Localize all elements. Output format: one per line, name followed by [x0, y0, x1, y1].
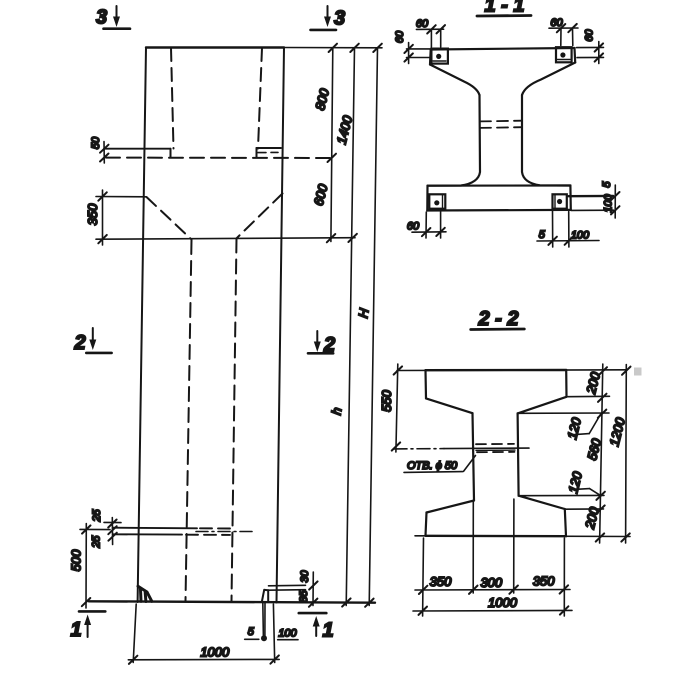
svg-text:300: 300 — [480, 575, 502, 590]
svg-text:3: 3 — [96, 7, 107, 29]
svg-text:5: 5 — [539, 229, 546, 241]
svg-text:100: 100 — [278, 627, 297, 639]
svg-text:1 - 1: 1 - 1 — [484, 0, 524, 17]
svg-text:3: 3 — [334, 8, 345, 30]
svg-text:600: 600 — [311, 182, 331, 207]
svg-text:25: 25 — [91, 535, 103, 549]
svg-text:30: 30 — [299, 570, 311, 583]
svg-text:1: 1 — [71, 619, 82, 641]
svg-text:50: 50 — [90, 136, 102, 149]
svg-text:350: 350 — [430, 574, 452, 589]
svg-text:85: 85 — [298, 590, 310, 603]
svg-text:1200: 1200 — [606, 415, 628, 447]
svg-text:60: 60 — [550, 17, 563, 29]
svg-text:60: 60 — [416, 18, 429, 30]
svg-text:1: 1 — [323, 620, 334, 642]
svg-text:ОТВ. ϕ 50: ОТВ. ϕ 50 — [407, 460, 458, 472]
svg-text:500: 500 — [69, 549, 84, 571]
svg-text:60: 60 — [407, 221, 420, 233]
svg-text:120: 120 — [564, 415, 584, 440]
svg-text:1000: 1000 — [488, 595, 518, 610]
svg-text:2 - 2: 2 - 2 — [477, 308, 518, 330]
svg-text:1000: 1000 — [200, 645, 230, 660]
svg-text:350: 350 — [85, 203, 100, 225]
svg-text:120: 120 — [565, 469, 585, 494]
svg-text:60: 60 — [584, 29, 596, 42]
svg-text:25: 25 — [91, 509, 103, 523]
svg-text:100: 100 — [571, 230, 590, 242]
svg-text:60: 60 — [394, 30, 406, 43]
svg-text:100: 100 — [603, 193, 615, 212]
svg-text:550: 550 — [379, 389, 394, 411]
svg-text:800: 800 — [312, 86, 332, 111]
svg-text:h: h — [329, 406, 345, 416]
svg-text:H: H — [355, 307, 372, 319]
svg-text:200: 200 — [583, 370, 603, 396]
svg-text:1400: 1400 — [334, 113, 356, 145]
svg-text:350: 350 — [533, 574, 555, 589]
svg-text:5: 5 — [248, 626, 255, 638]
svg-text:5: 5 — [601, 181, 613, 188]
svg-text:2: 2 — [74, 332, 86, 354]
